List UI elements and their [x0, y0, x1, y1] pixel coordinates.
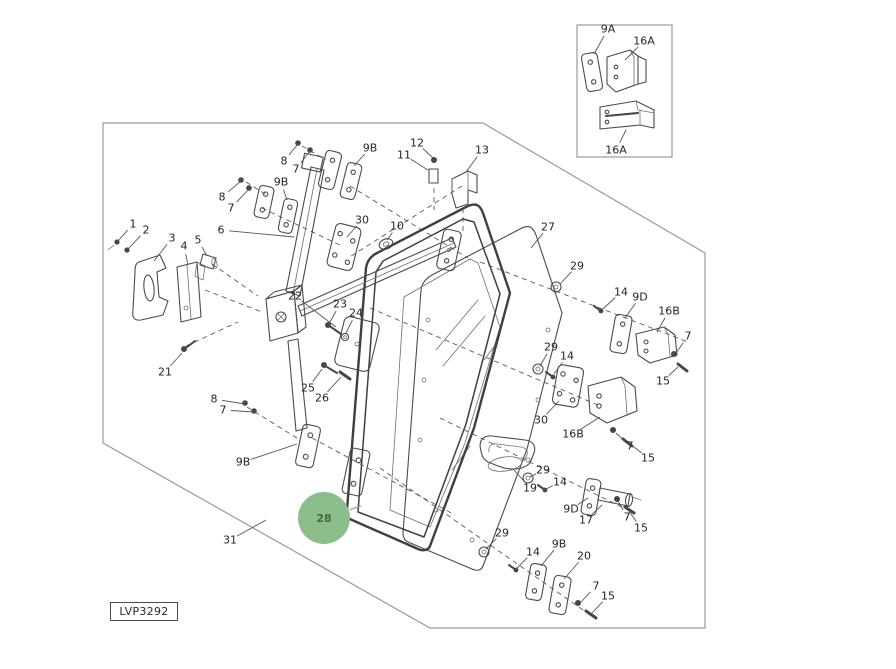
part-callout-7[interactable]: 7 — [685, 331, 692, 342]
part-callout-29[interactable]: 29 — [536, 465, 550, 476]
part-callout-15[interactable]: 15 — [641, 453, 655, 464]
part-callout-14[interactable]: 14 — [553, 477, 567, 488]
part-callout-29[interactable]: 29 — [570, 261, 584, 272]
part-callout-21[interactable]: 21 — [158, 367, 172, 378]
part-callout-15[interactable]: 15 — [601, 591, 615, 602]
part-callout-29[interactable]: 29 — [544, 342, 558, 353]
part-callout-29[interactable]: 29 — [495, 528, 509, 539]
part-callout-9B[interactable]: 9B — [363, 143, 378, 154]
part-callout-20[interactable]: 20 — [577, 551, 591, 562]
part-callout-5[interactable]: 5 — [195, 235, 202, 246]
part-callout-25[interactable]: 25 — [301, 383, 315, 394]
part-callout-9B[interactable]: 9B — [236, 457, 251, 468]
part-callout-8[interactable]: 8 — [219, 192, 226, 203]
parts-diagram-page: LVP3292 9A16A16A87879B9B1211131234563010… — [0, 0, 896, 669]
part-callout-14[interactable]: 14 — [526, 547, 540, 558]
part-callout-10[interactable]: 10 — [390, 221, 404, 232]
part-callout-26[interactable]: 26 — [315, 393, 329, 404]
part-callout-12[interactable]: 12 — [410, 138, 424, 149]
part-callout-17[interactable]: 17 — [579, 515, 593, 526]
part-callout-16B[interactable]: 16B — [658, 306, 680, 317]
part-callout-22[interactable]: 22 — [288, 291, 302, 302]
part-callout-7[interactable]: 7 — [228, 203, 235, 214]
part-callout-7[interactable]: 7 — [627, 441, 634, 452]
part-callout-9D[interactable]: 9D — [632, 292, 647, 303]
part-callout-16A[interactable]: 16A — [605, 145, 627, 156]
part-callout-9B[interactable]: 9B — [552, 539, 567, 550]
highlighted-part-callout-28[interactable]: 28 — [298, 492, 350, 544]
part-callout-7[interactable]: 7 — [220, 405, 227, 416]
part-callout-7[interactable]: 7 — [593, 581, 600, 592]
part-callout-16B[interactable]: 16B — [562, 429, 584, 440]
part-callout-14[interactable]: 14 — [614, 287, 628, 298]
part-callout-30[interactable]: 30 — [355, 215, 369, 226]
part-callout-16A[interactable]: 16A — [633, 36, 655, 47]
part-callout-23[interactable]: 23 — [333, 299, 347, 310]
part-callout-3[interactable]: 3 — [169, 233, 176, 244]
part-callout-24[interactable]: 24 — [349, 308, 363, 319]
part-callout-6[interactable]: 6 — [218, 225, 225, 236]
part-callout-14[interactable]: 14 — [560, 351, 574, 362]
part-callout-7[interactable]: 7 — [293, 164, 300, 175]
part-callout-4[interactable]: 4 — [181, 241, 188, 252]
part-callout-31[interactable]: 31 — [223, 535, 237, 546]
leader-lines — [0, 0, 896, 669]
part-callout-9B[interactable]: 9B — [274, 177, 289, 188]
part-callout-13[interactable]: 13 — [475, 145, 489, 156]
part-callout-1[interactable]: 1 — [130, 219, 137, 230]
part-callout-7[interactable]: 7 — [624, 512, 631, 523]
part-callout-19[interactable]: 19 — [523, 483, 537, 494]
part-callout-15[interactable]: 15 — [656, 376, 670, 387]
part-callout-9A[interactable]: 9A — [601, 24, 616, 35]
part-callout-8[interactable]: 8 — [281, 156, 288, 167]
part-callout-15[interactable]: 15 — [634, 523, 648, 534]
part-callout-9D[interactable]: 9D — [563, 504, 578, 515]
part-callout-27[interactable]: 27 — [541, 222, 555, 233]
part-callout-11[interactable]: 11 — [397, 150, 411, 161]
part-callout-8[interactable]: 8 — [211, 394, 218, 405]
figure-code-box: LVP3292 — [110, 602, 178, 621]
part-callout-2[interactable]: 2 — [143, 225, 150, 236]
part-callout-30[interactable]: 30 — [534, 415, 548, 426]
